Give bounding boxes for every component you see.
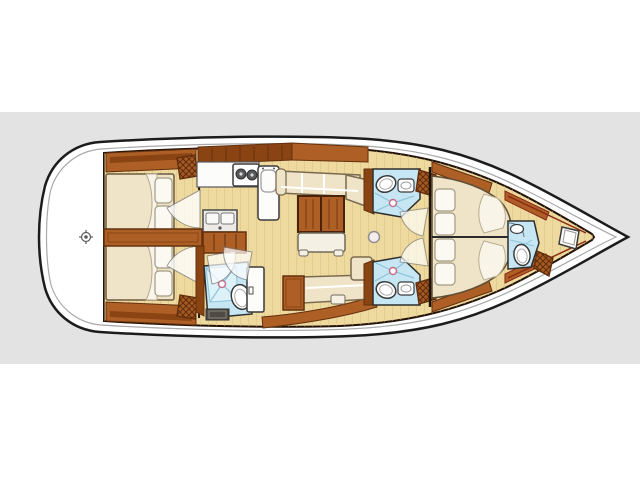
- pillow: [435, 213, 455, 235]
- sink: [398, 282, 414, 295]
- pillow: [435, 189, 455, 211]
- vanity-sink: [247, 267, 264, 312]
- hatch-locker-lattice: [177, 155, 198, 179]
- sink-bowl: [206, 213, 219, 224]
- sofa-armrest: [276, 169, 286, 195]
- shower-drain: [390, 200, 397, 207]
- burner-center: [250, 173, 253, 176]
- cabin-divider: [104, 229, 202, 246]
- faucet: [218, 226, 221, 229]
- yacht-floor-plan-diagram: [0, 0, 640, 479]
- floor-plan-stage: [0, 0, 640, 479]
- side-bench-tab: [331, 295, 345, 304]
- burner-center: [239, 172, 242, 175]
- fridge-latch: [262, 168, 264, 170]
- pillow: [155, 178, 172, 203]
- shower-drain: [390, 268, 397, 275]
- sink-bowl: [221, 213, 234, 224]
- mast-post: [369, 232, 380, 243]
- hatch-locker-lattice: [177, 295, 198, 319]
- bench-foot: [334, 250, 343, 256]
- fridge-latch: [273, 168, 275, 170]
- pillow: [155, 271, 172, 296]
- sink: [398, 179, 414, 192]
- sink: [511, 225, 524, 234]
- bench-foot: [299, 250, 308, 256]
- white-bench: [298, 233, 345, 252]
- pillow: [435, 263, 455, 285]
- head-wall: [196, 246, 204, 316]
- pillow: [435, 239, 455, 261]
